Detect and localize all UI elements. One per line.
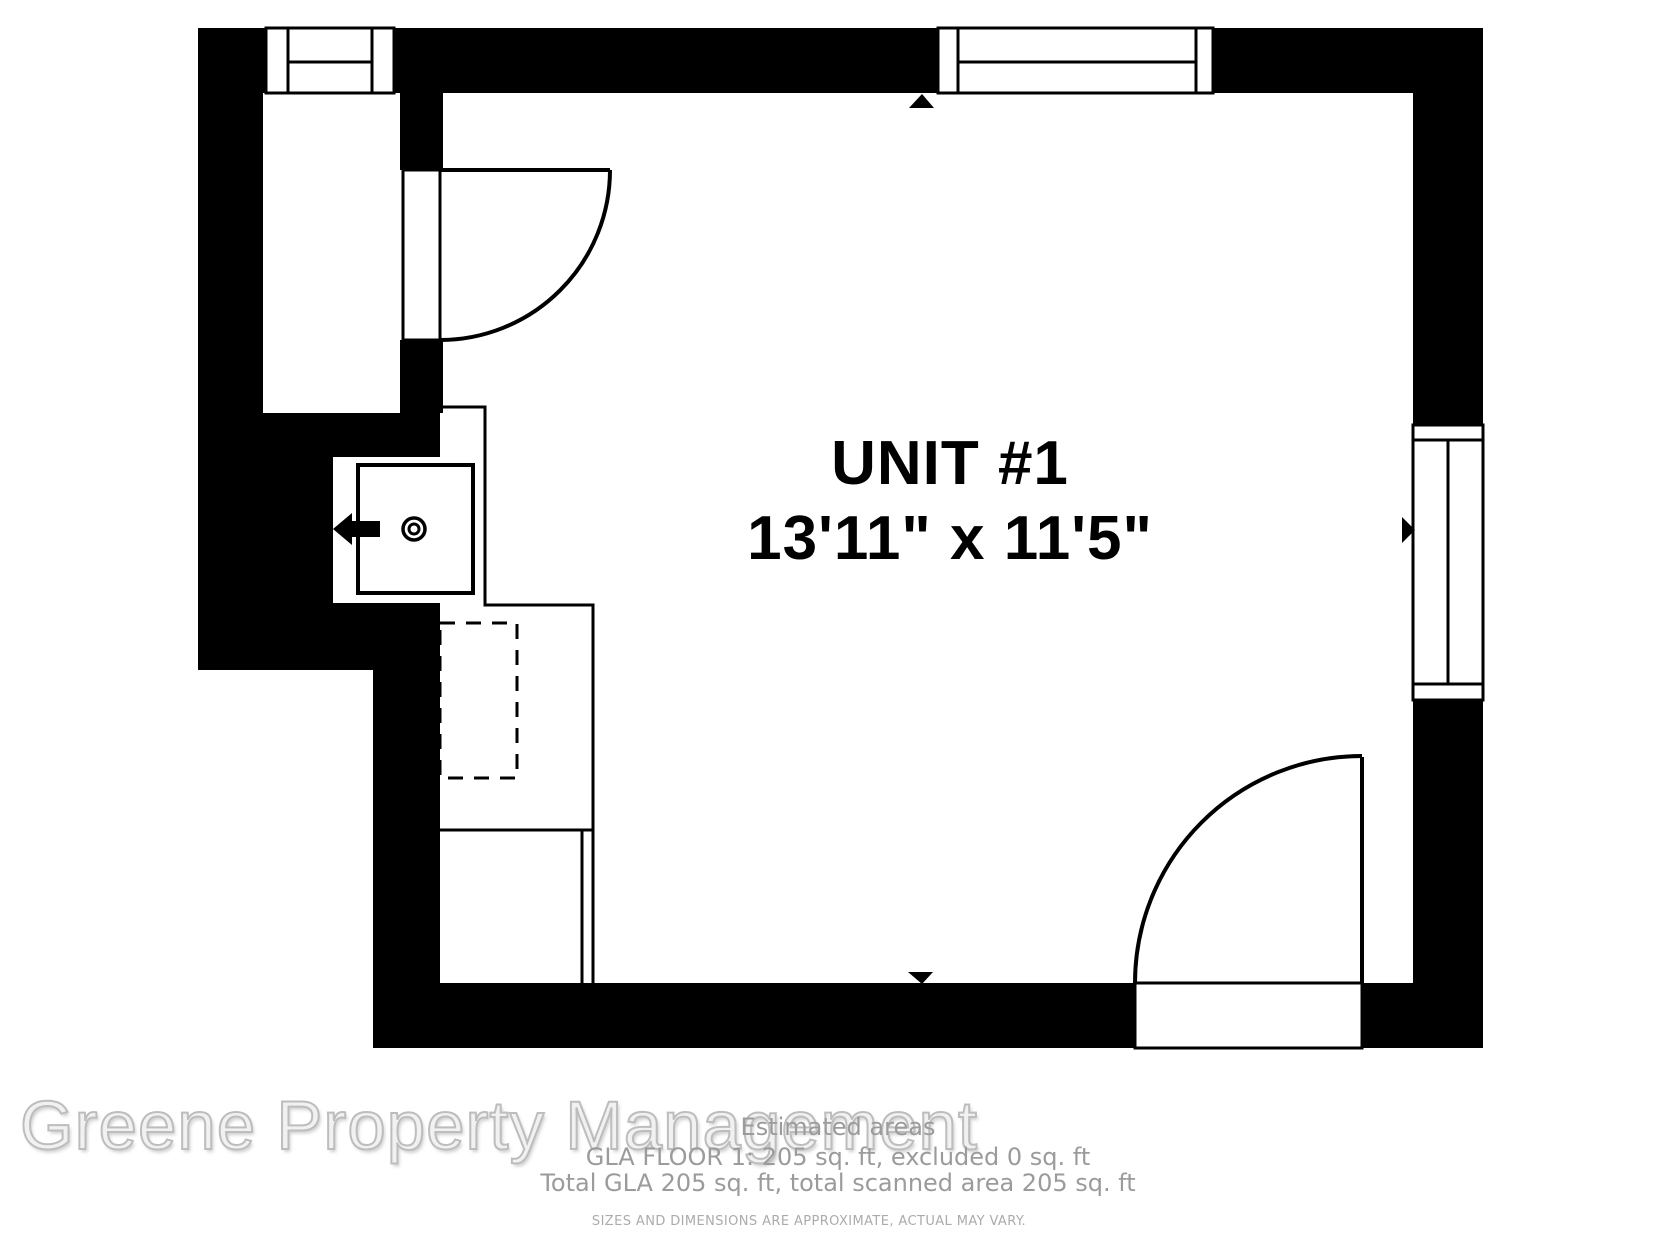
door-swing-arc [1135, 756, 1362, 983]
window-top-left [266, 28, 394, 93]
wall-closet-divider-upper [400, 93, 443, 170]
window-top-right [938, 28, 1213, 93]
closet-interior [263, 93, 400, 413]
wall-left-lower [373, 670, 440, 983]
scan-marker-down-icon [908, 972, 933, 984]
floorplan-drawing [0, 0, 1680, 1260]
wall-closet-divider-lower [400, 340, 443, 413]
appliance-dashed-outline [440, 623, 517, 778]
faucet-stem [352, 521, 380, 537]
total-gla-line: Total GLA 205 sq. ft, total scanned area… [540, 1169, 1135, 1197]
room-dimensions-label: 13'11" x 11'5" [747, 503, 1153, 574]
window-right [1413, 425, 1483, 700]
door-top-left [403, 170, 610, 340]
gla-floor-line: GLA FLOOR 1: 205 sq. ft, excluded 0 sq. … [586, 1143, 1090, 1171]
disclaimer-text: SIZES AND DIMENSIONS ARE APPROXIMATE, AC… [592, 1214, 1026, 1229]
door-opening [403, 170, 440, 340]
door-swing-arc [440, 170, 610, 340]
estimated-areas-title: Estimated areas [741, 1113, 936, 1141]
unit-label: UNIT #1 [831, 428, 1069, 499]
door-opening [1135, 983, 1362, 1048]
scan-marker-up-icon [909, 94, 934, 108]
floorplan-canvas: Greene Property Management UNIT #1 13'11… [0, 0, 1680, 1260]
wall-left-upper [198, 93, 263, 413]
door-bottom-right [1135, 756, 1362, 1048]
